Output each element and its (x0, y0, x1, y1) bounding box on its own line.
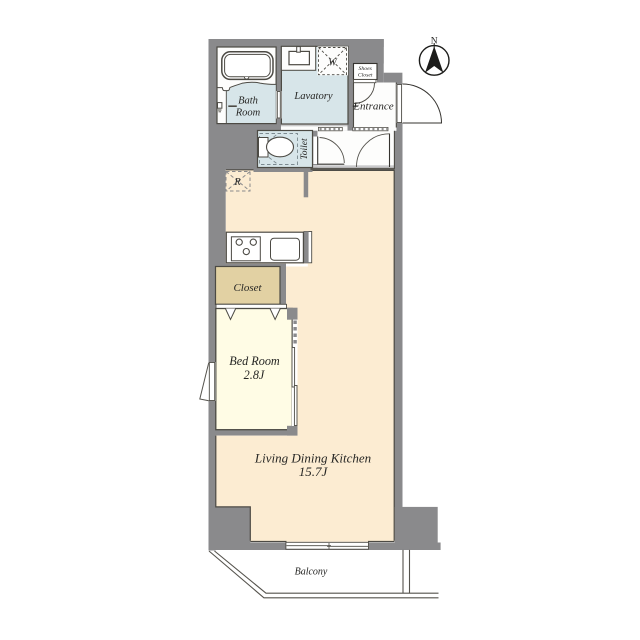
svg-text:Bed Room: Bed Room (229, 354, 280, 368)
svg-text:15.7J: 15.7J (299, 464, 329, 479)
svg-text:R: R (233, 177, 240, 188)
svg-text:Closet: Closet (358, 73, 373, 79)
svg-text:Lavatory: Lavatory (293, 91, 333, 102)
svg-text:2.8J: 2.8J (244, 368, 265, 382)
svg-text:Balcony: Balcony (295, 567, 328, 578)
svg-text:Toilet: Toilet (300, 138, 310, 160)
svg-text:Shoes: Shoes (359, 66, 373, 72)
svg-text:Bath: Bath (238, 96, 258, 107)
svg-text:N: N (431, 37, 438, 47)
svg-text:Closet: Closet (233, 282, 262, 294)
svg-text:Entrance: Entrance (352, 101, 393, 113)
svg-text:Room: Room (235, 108, 261, 119)
